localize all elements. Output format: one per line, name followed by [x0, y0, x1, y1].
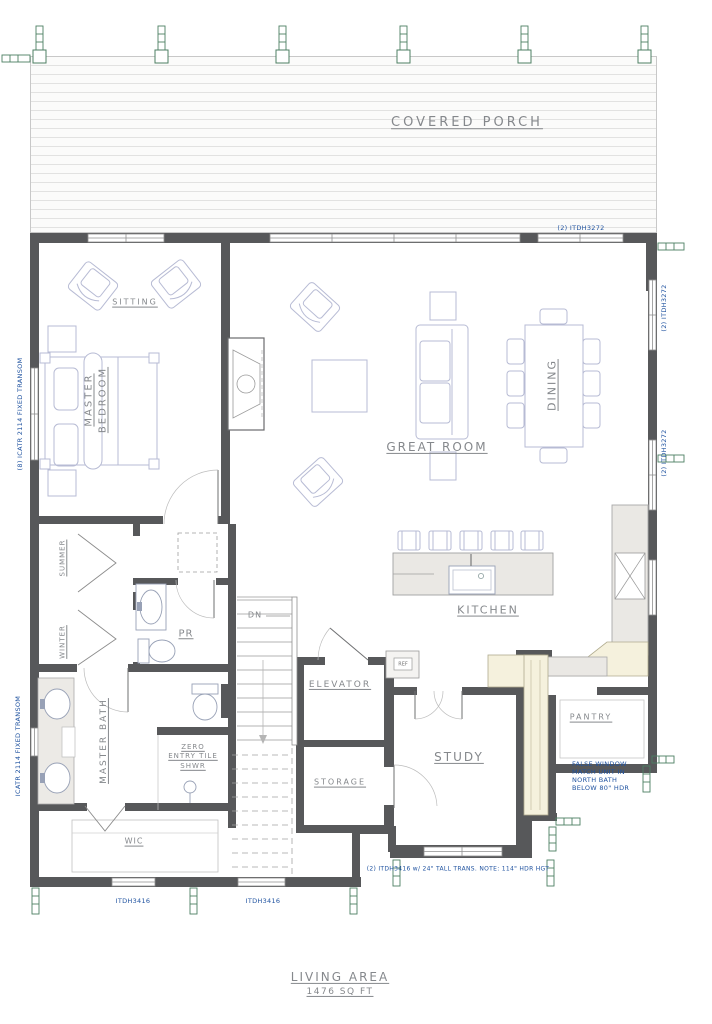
stake	[32, 888, 39, 914]
living-area-title: LIVING AREA	[291, 969, 389, 985]
label-zero-entry-shower: ZERO ENTRY TILE SHWR	[167, 743, 219, 771]
window-top-right-itdh3272	[538, 234, 623, 242]
window-right-lower	[649, 560, 656, 615]
annotation-itdh3272-right-upper: (2) ITDH3272	[660, 284, 668, 331]
label-winter-closet: WINTER	[58, 625, 67, 659]
annotation-study-window-note: (2) ITDH3416 w/ 24" TALL TRANS. NOTE: 11…	[367, 865, 550, 873]
nightstand-upper	[48, 326, 76, 352]
annotation-itdh3416-left: ITDH3416	[116, 897, 151, 905]
floor-plan-drawing	[0, 0, 712, 1024]
annotation-itdh3272-right-lower: (2) ITDH3272	[660, 429, 668, 476]
label-pantry: PANTRY	[570, 713, 613, 724]
window-top-center	[270, 234, 520, 242]
window-bottom-right-itdh3416	[238, 878, 285, 886]
label-powder-room: PR	[179, 627, 194, 641]
nightstand-lower	[48, 470, 76, 496]
wic-double-doors	[85, 806, 125, 831]
label-study: STUDY	[434, 749, 484, 765]
stake	[547, 860, 554, 886]
summer-closet-bifold	[78, 534, 116, 592]
label-storage: STORAGE	[314, 778, 366, 789]
master-bedroom-door	[164, 470, 218, 524]
stake	[549, 827, 556, 851]
stake	[158, 26, 165, 50]
stair-down-arrow	[259, 735, 267, 744]
label-summer-closet: SUMMER	[58, 540, 67, 577]
powder-room-door	[176, 580, 214, 618]
annotation-icatr-lower: ICATR 2114 FIXED TRANSOM	[14, 696, 22, 796]
coffee-table	[312, 360, 367, 412]
storage-door	[394, 765, 437, 808]
floor-plan: COVERED PORCH SITTING MASTER BEDROOM GRE…	[0, 0, 712, 1024]
window-top-left	[88, 234, 164, 242]
window-right-upper	[649, 280, 656, 350]
winter-closet-bifold	[78, 610, 116, 665]
porch-posts	[33, 50, 651, 63]
hall-door	[318, 628, 368, 660]
label-kitchen: KITCHEN	[457, 604, 519, 619]
fireplace	[228, 338, 264, 430]
gray-counter	[545, 657, 607, 676]
stairs	[232, 597, 297, 876]
bar-stools	[398, 531, 543, 550]
label-master-bath: MASTER BATH	[98, 698, 110, 784]
bath-toilet	[192, 684, 218, 720]
end-table-lower	[430, 452, 456, 480]
label-wic: WIC	[125, 837, 144, 848]
label-stairs-dn: DN	[248, 611, 262, 622]
range	[615, 553, 645, 599]
annotation-itdh3272-top: (2) ITDH3272	[557, 224, 604, 232]
stake	[641, 26, 648, 50]
pr-sink	[136, 584, 166, 630]
window-study-itdh3416-pair	[424, 847, 502, 856]
stake	[350, 888, 357, 914]
label-dining: DINING	[546, 359, 561, 411]
stake	[556, 818, 580, 825]
end-table-upper	[430, 292, 456, 320]
wic-shelving	[72, 820, 218, 872]
label-ref: REF	[398, 662, 408, 669]
stake	[36, 26, 43, 50]
annotation-false-window-note: FALSE WINDOW MATCH UNIT IN NORTH BATH BE…	[572, 760, 636, 793]
annotation-icatr-upper: (8) ICATR 2114 FIXED TRANSOM	[16, 358, 24, 471]
label-covered-porch: COVERED PORCH	[391, 114, 543, 132]
stake	[2, 55, 30, 62]
stairs-dashed-below	[232, 748, 292, 876]
pr-toilet	[138, 639, 175, 663]
study-double-doors	[415, 691, 462, 719]
stake	[400, 26, 407, 50]
window-bottom-left-itdh3416	[112, 878, 155, 886]
stake	[393, 860, 400, 886]
stake	[190, 888, 197, 914]
dashed-opening	[178, 533, 217, 572]
stake	[521, 26, 528, 50]
stake	[658, 243, 684, 250]
stake	[279, 26, 286, 50]
label-master-bedroom: MASTER BEDROOM	[83, 358, 110, 442]
label-great-room: GREAT ROOM	[386, 439, 487, 455]
annotation-itdh3416-right: ITDH3416	[246, 897, 281, 905]
false-window-unit	[524, 655, 548, 815]
sofa	[416, 325, 468, 439]
label-elevator: ELEVATOR	[309, 679, 371, 691]
window-right-middle	[649, 440, 656, 510]
label-sitting: SITTING	[112, 298, 158, 309]
armchair-great-upper	[289, 281, 341, 333]
window-left-transom	[31, 368, 38, 460]
pantry-shelves	[560, 700, 644, 758]
living-area-value: 1476 SQ FT	[307, 986, 374, 998]
armchair-great-lower	[292, 456, 344, 508]
window-left-bath-transom	[31, 728, 38, 756]
